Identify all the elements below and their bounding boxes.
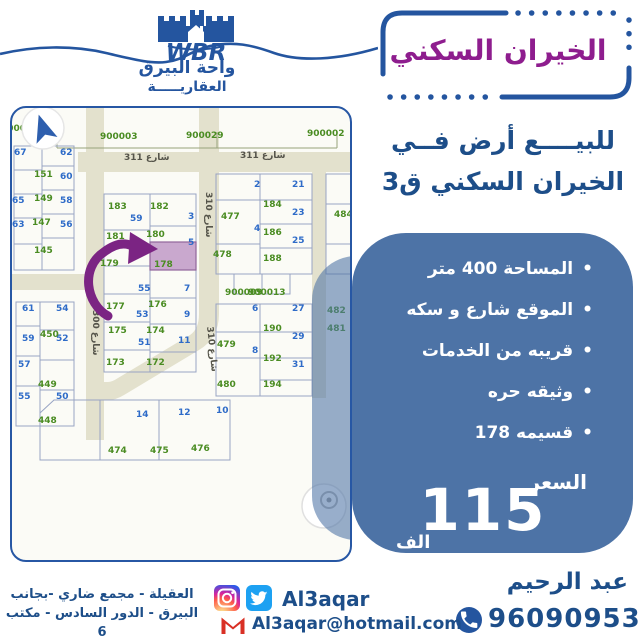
blue-overlay (312, 256, 352, 540)
gmail-icon (220, 615, 246, 635)
email-row[interactable]: Al3aqar@hotmail.com (220, 613, 450, 639)
castle-icon (158, 10, 234, 42)
logo-name-line1: واحة البيرق (112, 58, 262, 78)
bullet-location: الموقع شارع و سكه (372, 300, 593, 320)
instagram-icon[interactable] (214, 585, 240, 611)
offer-line1: للبيــــع أرض فــي (372, 120, 634, 161)
social-handle[interactable]: Al3aqar (282, 587, 369, 611)
bullet-deed: وثيقه حره (372, 382, 593, 402)
phone-row[interactable]: 96090953 (456, 604, 634, 636)
offer-details-box: المساحة 400 متر الموقع شارع و سكه قريبه … (352, 233, 633, 553)
price-value: 115 (418, 476, 548, 544)
phone-number[interactable]: 96090953 (488, 604, 640, 634)
compass-icon[interactable] (18, 106, 68, 156)
offer-line2: الخيران السكني ق3 (372, 161, 634, 202)
twitter-icon[interactable] (246, 585, 272, 611)
offer-headline: للبيــــع أرض فــي الخيران السكني ق3 (372, 120, 634, 203)
pointer-arrow (12, 108, 350, 560)
address-line1: العقيلة - مجمع ضاري -بجانب (2, 586, 202, 605)
company-logo: WBR واحة البيرق العقاريـــــة (0, 0, 378, 110)
bullet-area: المساحة 400 متر (372, 259, 593, 279)
agent-name: عبد الرحيم (408, 569, 628, 595)
bullet-plot: قسيمه 178 (372, 423, 593, 443)
social-row[interactable]: Al3aqar (214, 585, 414, 613)
offer-bullet-list: المساحة 400 متر الموقع شارع و سكه قريبه … (352, 233, 633, 443)
office-address: العقيلة - مجمع ضاري -بجانب البيرق - الدو… (2, 586, 202, 640)
bullet-services: قريبه من الخدمات (372, 341, 593, 361)
address-line2: البيرق - الدور السادس - مكتب 6 (2, 605, 202, 640)
logo-name-line2: العقاريـــــة (112, 79, 262, 95)
flyer-page: WBR واحة البيرق العقاريـــــة الخيران ال… (0, 0, 640, 640)
project-title-badge: الخيران السكني (378, 8, 634, 98)
email-address[interactable]: Al3aqar@hotmail.com (252, 614, 462, 634)
price-unit: الف (396, 532, 430, 553)
plot-map: 6762606558635661545952575550593575557539… (10, 106, 352, 562)
project-title: الخيران السكني (378, 34, 618, 67)
